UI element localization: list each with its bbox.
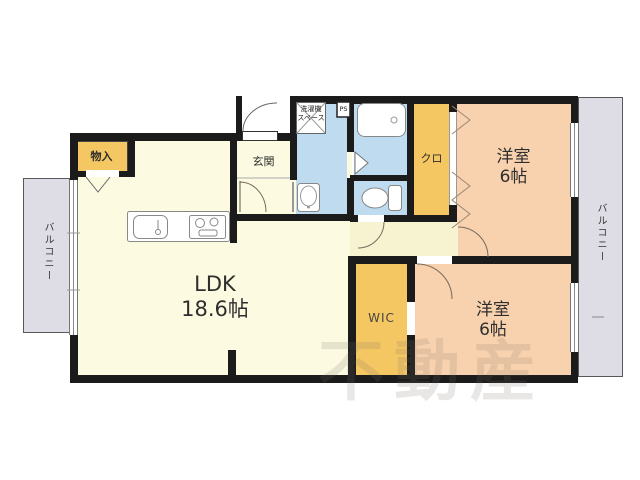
ldk-size: 18.6帖: [78, 297, 352, 322]
wall-segment: [384, 215, 455, 222]
wall-segment: [236, 96, 242, 141]
ldk-label: LDK 18.6帖: [78, 272, 352, 322]
window-ldk: [69, 180, 78, 335]
wall-segment: [347, 178, 354, 215]
storage-label: 物入: [75, 148, 128, 164]
wall-segment: [350, 215, 358, 222]
wall-segment: [228, 350, 236, 376]
wall-segment: [237, 214, 352, 221]
wall-segment: [70, 171, 86, 177]
balcony-left-label: バルコニー: [40, 222, 55, 282]
window-bedroom-bottom: [570, 283, 579, 352]
wall-segment: [277, 133, 291, 141]
floor-plan: 不動産 物入 玄関 洗濯機 スペース PS クロ 洋室 6帖 洋室 6帖 WIC…: [0, 0, 640, 480]
wall-segment: [449, 205, 457, 222]
wall-segment: [348, 256, 417, 264]
toilet-room-floor: [354, 181, 407, 215]
bedroom-bottom-size: 6帖: [415, 320, 571, 340]
wall-segment: [119, 171, 135, 177]
storage-door-opening: [86, 170, 119, 177]
wic-label: WIC: [356, 311, 407, 325]
washer-space-label: 洗濯機 スペース: [291, 105, 331, 123]
bathroom-floor: [354, 104, 407, 175]
wall-segment: [230, 141, 237, 243]
wall-segment: [452, 256, 578, 264]
bedroom-top-name: 洋室: [456, 147, 571, 167]
washer-space-line1: 洗濯機: [291, 105, 331, 114]
bedroom-bottom-name: 洋室: [415, 300, 571, 320]
washer-space-line2: スペース: [291, 114, 331, 123]
entrance-door-icon: [243, 103, 278, 141]
wall-segment: [407, 96, 414, 222]
entrance-label: 玄関: [237, 153, 290, 169]
hall-floor: [350, 222, 458, 256]
bedroom-top-label: 洋室 6帖: [456, 147, 571, 187]
balcony-right-label: バルコニー: [593, 203, 608, 263]
ldk-name: LDK: [78, 272, 352, 297]
wall-segment: [449, 96, 457, 112]
pipe-space-label: PS: [337, 105, 350, 113]
bedroom-bottom-label: 洋室 6帖: [415, 300, 571, 340]
bedroom-top-size: 6帖: [456, 167, 571, 187]
wall-segment: [70, 133, 241, 141]
window-bedroom-top: [570, 123, 579, 197]
wall-segment: [407, 264, 415, 302]
closet-label: クロ: [414, 150, 449, 166]
wall-segment: [290, 96, 578, 104]
wall-segment: [350, 175, 412, 181]
